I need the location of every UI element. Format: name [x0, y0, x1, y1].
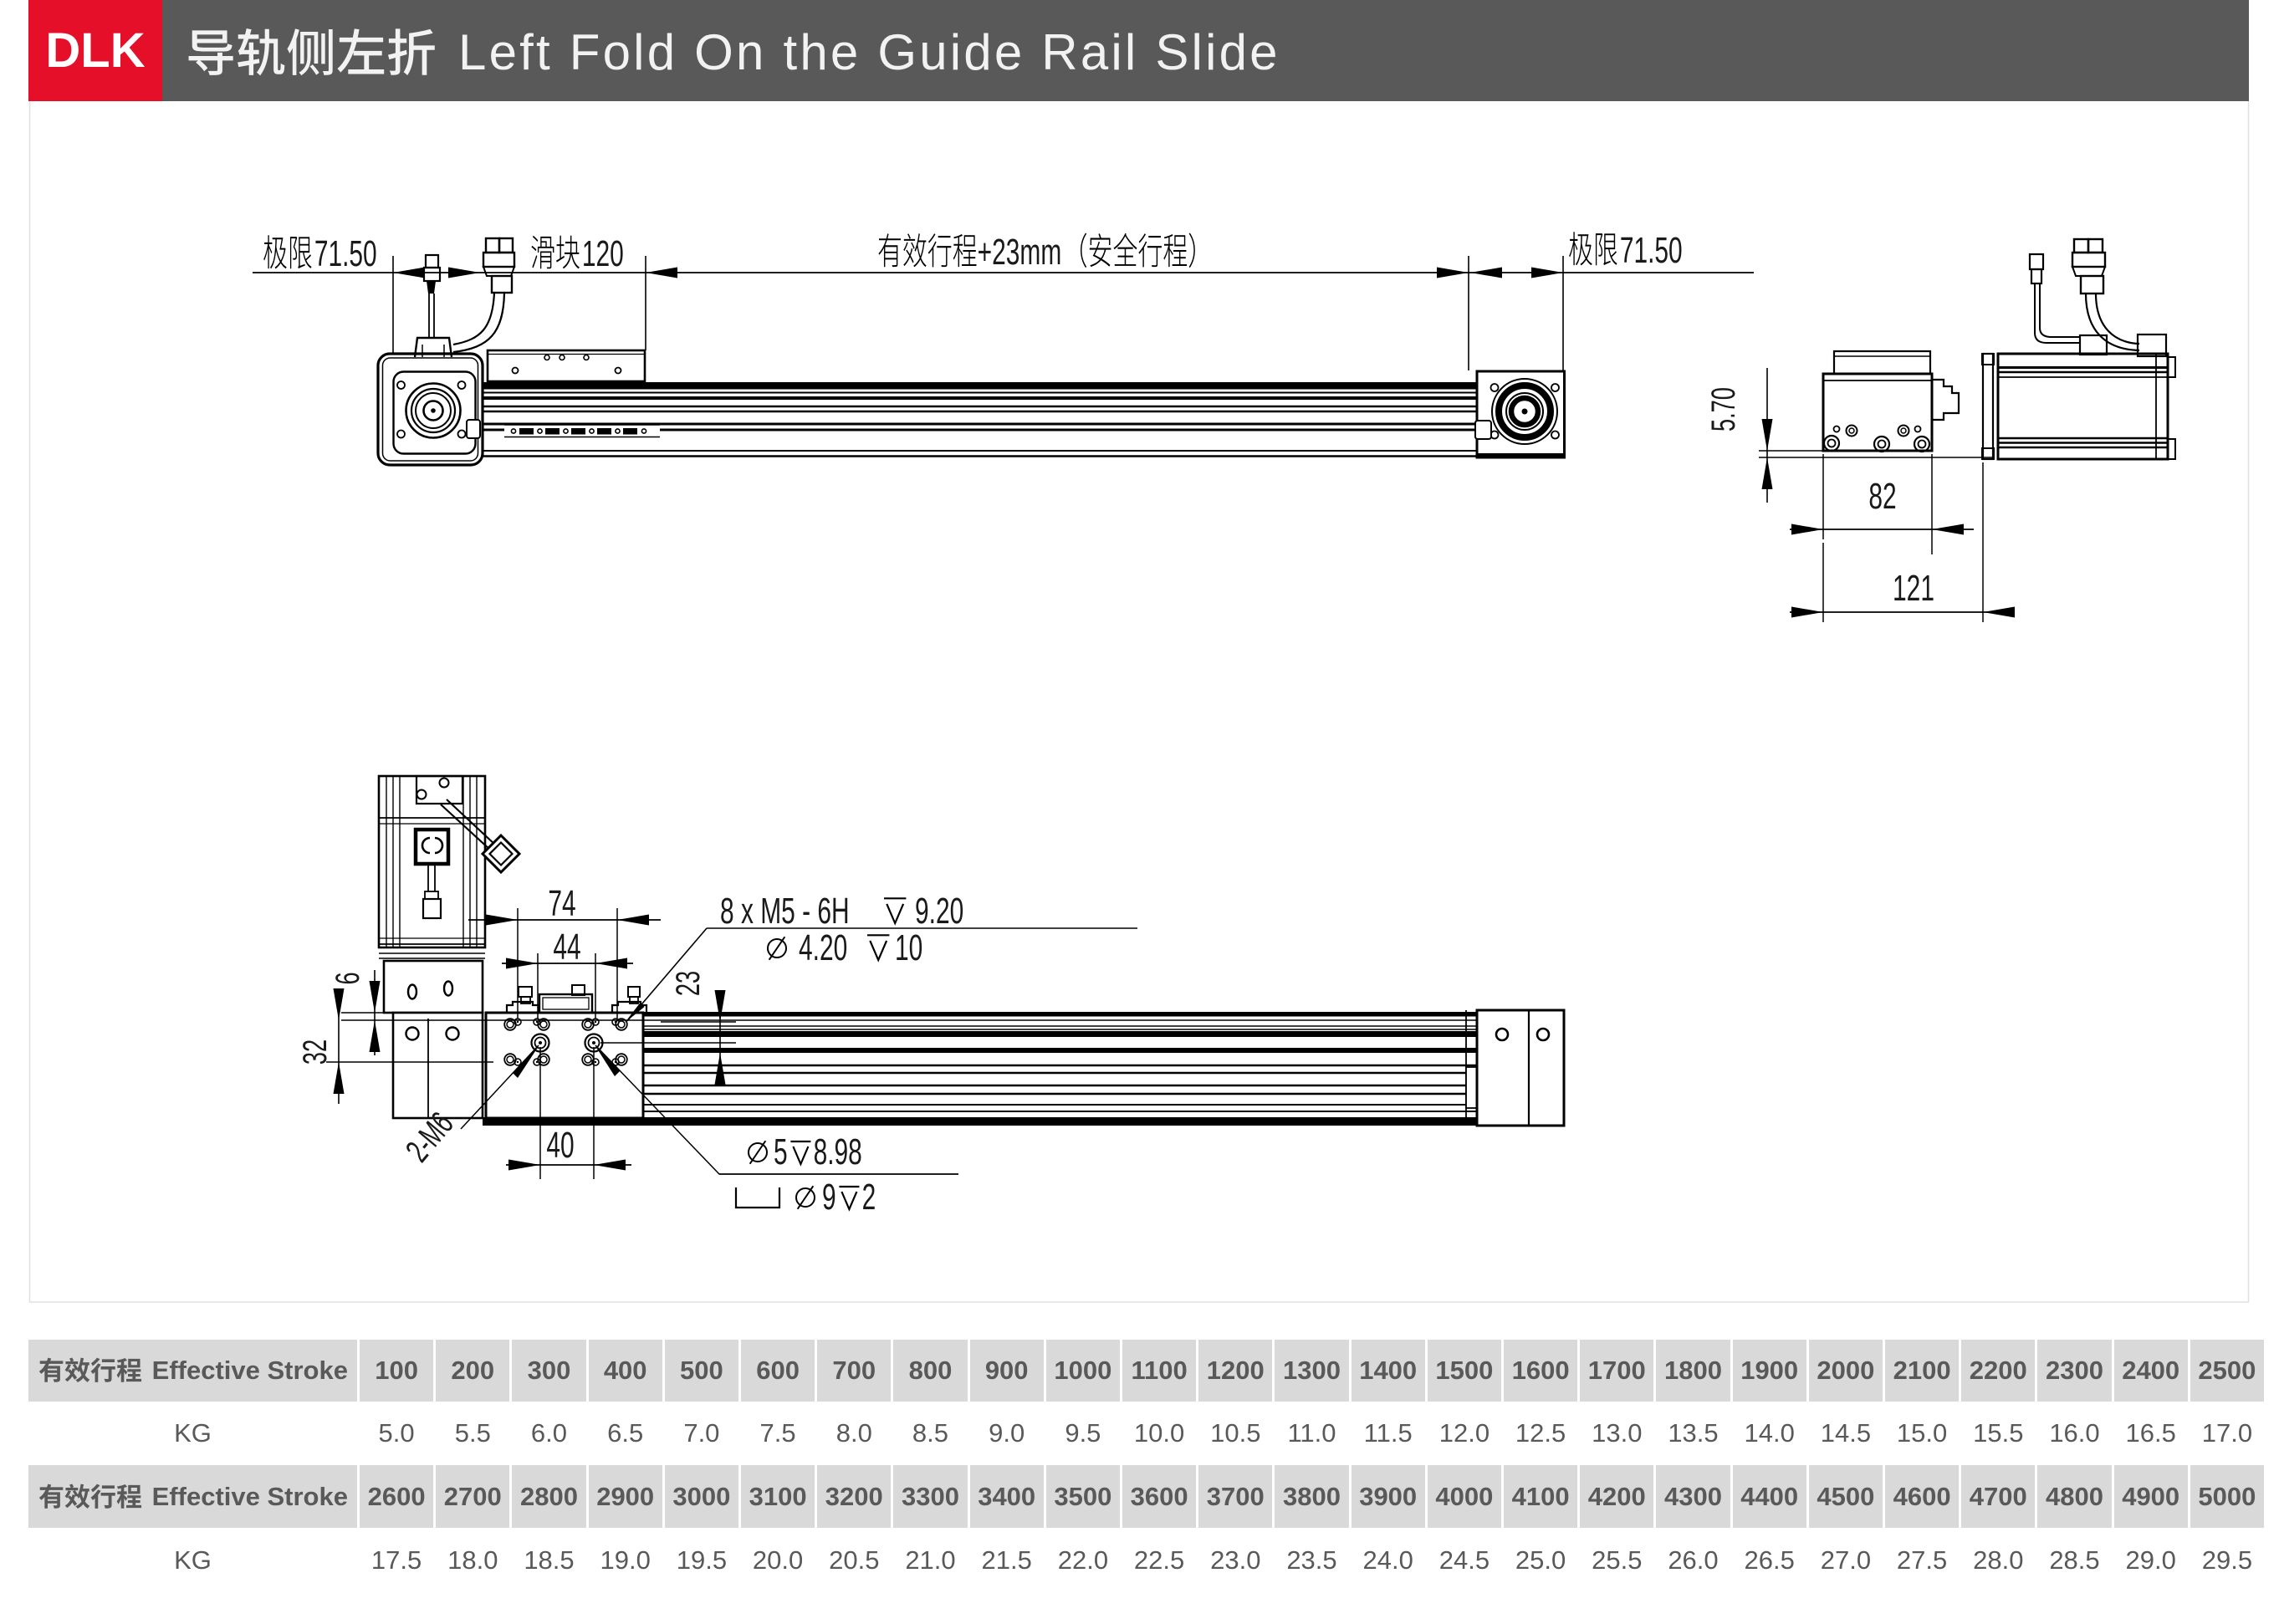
svg-text:5.70: 5.70	[1705, 387, 1742, 432]
svg-text:6: 6	[330, 972, 366, 984]
svg-text:8 x M5 - 6H: 8 x M5 - 6H	[720, 890, 850, 931]
svg-text:82: 82	[1868, 475, 1896, 516]
svg-text:+23mm: +23mm	[978, 231, 1062, 272]
svg-text:44: 44	[553, 926, 580, 967]
svg-text:8.98: 8.98	[814, 1131, 862, 1172]
svg-text:121: 121	[1893, 567, 1934, 608]
svg-text:10: 10	[895, 927, 922, 968]
svg-text:32: 32	[297, 1039, 334, 1065]
svg-text:2: 2	[862, 1176, 876, 1217]
svg-text:4.20: 4.20	[799, 927, 847, 968]
svg-text:40: 40	[546, 1124, 574, 1165]
svg-text:9: 9	[822, 1176, 836, 1217]
svg-text:74: 74	[548, 882, 575, 923]
svg-text:23: 23	[670, 971, 707, 996]
svg-text:5: 5	[774, 1131, 788, 1172]
svg-text:71.50: 71.50	[314, 232, 377, 273]
svg-text:9.20: 9.20	[915, 890, 963, 931]
svg-text:71.50: 71.50	[1620, 229, 1683, 270]
svg-text:120: 120	[582, 232, 624, 273]
